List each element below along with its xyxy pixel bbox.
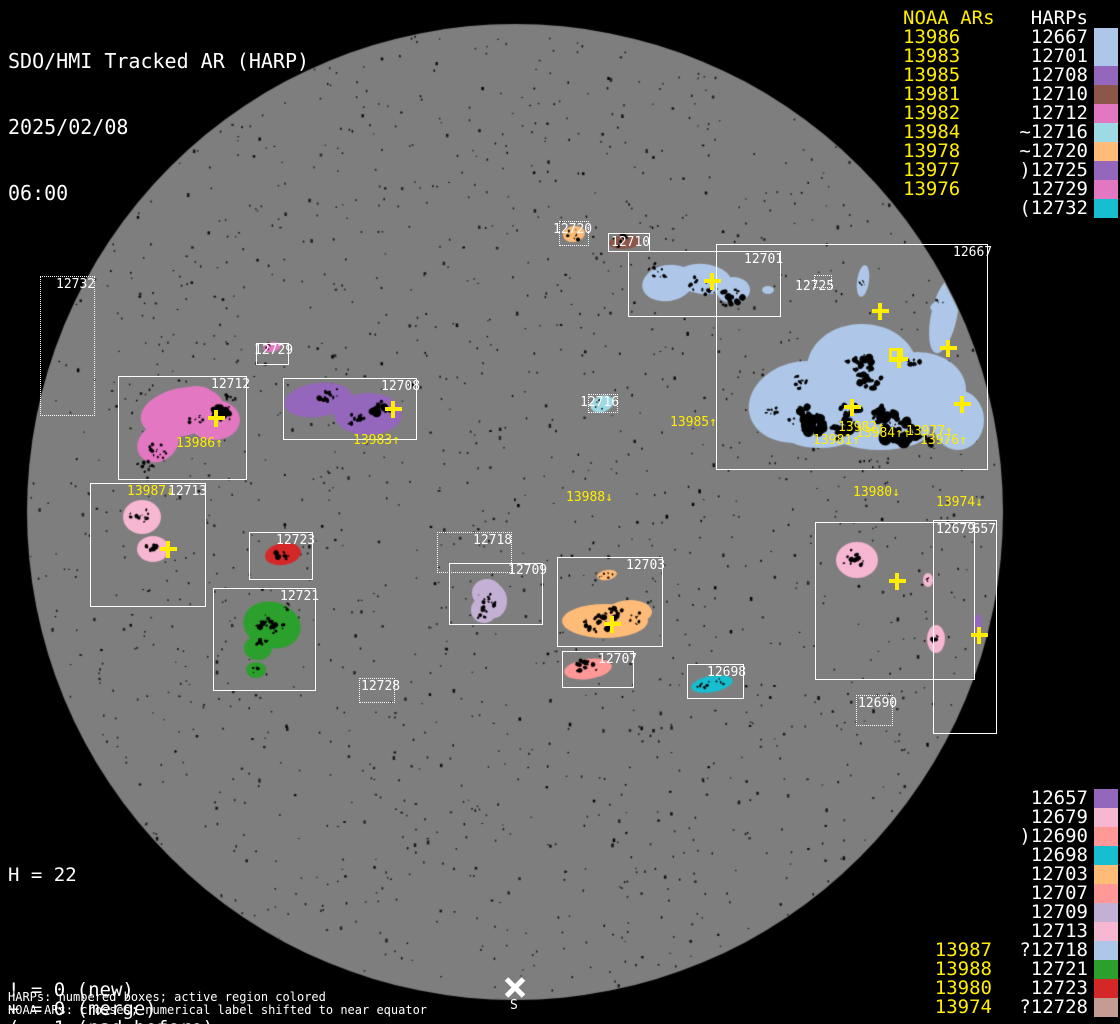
title-block: SDO/HMI Tracked AR (HARP) 2025/02/08 06:…	[8, 6, 309, 248]
color-swatch	[1094, 998, 1118, 1017]
time-label: 06:00	[8, 182, 309, 204]
noaa-ar-label: 13974↓	[936, 496, 983, 509]
legend-row: 12703	[930, 865, 1118, 884]
harp-label-12718: 12718	[473, 534, 512, 547]
harp-count: H = 22	[8, 866, 225, 885]
date-label: 2025/02/08	[8, 116, 309, 138]
legend-row: 12698	[930, 846, 1118, 865]
color-swatch	[1094, 979, 1118, 998]
harp-label-12721: 12721	[280, 590, 319, 603]
noaa-cross-marker	[844, 399, 861, 416]
color-swatch	[1094, 123, 1118, 142]
legend-top-right: NOAA ARs HARPs 1398612667139831270113985…	[903, 9, 1118, 218]
harp-label-12703: 12703	[626, 559, 665, 572]
legend-row: 13974?12728	[930, 998, 1118, 1017]
harp-label-12716: 12716	[580, 396, 619, 409]
noaa-cross-marker	[160, 541, 177, 558]
color-swatch	[1094, 827, 1118, 846]
color-swatch	[1094, 47, 1118, 66]
harp-label-12708: 12708	[381, 380, 420, 393]
harp-label-12701: 12701	[744, 253, 783, 266]
noaa-cross-marker	[604, 616, 621, 633]
color-swatch	[1094, 85, 1118, 104]
noaa-cross-marker	[872, 303, 889, 320]
noaa-ar-label: 13985↑	[670, 416, 717, 429]
noaa-square-marker	[889, 348, 903, 362]
footnote-line: NOAA ARs: crosses; numerical label shift…	[8, 1004, 427, 1017]
harp-label-12728: 12728	[361, 680, 400, 693]
harp-label-12725: 12725	[795, 280, 834, 293]
noaa-cross-marker	[704, 273, 721, 290]
harp-label-12732: 12732	[56, 278, 95, 291]
harp-number: (12732	[965, 199, 1088, 218]
noaa-ar-label: 13988↓	[566, 491, 613, 504]
page-title: SDO/HMI Tracked AR (HARP)	[8, 50, 309, 72]
south-label: S	[510, 998, 518, 1013]
noaa-cross-marker	[208, 410, 225, 427]
noaa-cross-marker	[954, 396, 971, 413]
noaa-ar-number: 13976	[903, 180, 965, 199]
noaa-ar-label: 13984↑↑	[856, 427, 911, 440]
legend-row: 12709	[930, 903, 1118, 922]
color-swatch	[1094, 789, 1118, 808]
color-swatch	[1094, 104, 1118, 123]
noaa-ar-label: 13980↓	[853, 486, 900, 499]
legend-row: (12732	[903, 199, 1118, 218]
swatch-spacer	[1094, 9, 1118, 28]
harp-label-12690: 12690	[858, 697, 897, 710]
color-swatch	[1094, 199, 1118, 218]
color-swatch	[1094, 28, 1118, 47]
noaa-ar-label: 13976↑	[920, 434, 967, 447]
harp-label-12723: 12723	[276, 534, 315, 547]
harp-box-12679	[815, 522, 975, 680]
noaa-ar-label: 13983↑	[353, 434, 400, 447]
footnotes: HARPs: numbered boxes; active region col…	[8, 991, 427, 1017]
legend-row: 12657	[930, 789, 1118, 808]
color-swatch	[1094, 180, 1118, 199]
harp-label-12679: 12679	[936, 523, 975, 536]
color-swatch	[1094, 941, 1118, 960]
harp-label-12710: 12710	[611, 236, 650, 249]
legend-bottom-right: 1265712679)12690126981270312707127091271…	[930, 789, 1118, 1017]
harp-label-12720: 12720	[553, 223, 592, 236]
color-swatch	[1094, 865, 1118, 884]
noaa-ar-label: 13986↑	[176, 437, 223, 450]
color-swatch	[1094, 808, 1118, 827]
color-swatch	[1094, 846, 1118, 865]
harp-number: ?12728	[992, 998, 1088, 1017]
legend-row: )12690	[930, 827, 1118, 846]
color-swatch	[1094, 142, 1118, 161]
harp-label-12657: 12657	[973, 523, 996, 539]
color-swatch	[1094, 903, 1118, 922]
noaa-cross-marker	[940, 340, 957, 357]
stats-gap	[8, 923, 225, 943]
harp-label-12707: 12707	[598, 653, 637, 666]
harp-fulldisk-map: 1273212720127101270112725126671271612729…	[0, 0, 1120, 1024]
noaa-ar-number: 13974	[930, 998, 992, 1017]
harp-box-12732	[40, 276, 95, 416]
color-swatch	[1094, 161, 1118, 180]
noaa-cross-marker	[971, 627, 988, 644]
harp-label-12698: 12698	[707, 666, 746, 679]
harp-label-12729: 12729	[254, 344, 293, 357]
noaa-cross-marker	[889, 573, 906, 590]
noaa-cross-marker	[385, 401, 402, 418]
color-swatch	[1094, 922, 1118, 941]
harp-box-12713	[90, 483, 206, 607]
noaa-ar-label: 13987↓	[127, 485, 174, 498]
color-swatch	[1094, 960, 1118, 979]
harp-label-12709: 12709	[508, 564, 547, 577]
color-swatch	[1094, 884, 1118, 903]
harp-label-12667: 12667	[953, 246, 992, 259]
harp-label-12712: 12712	[211, 378, 250, 391]
color-swatch	[1094, 66, 1118, 85]
flag-legend-line: ( = 1 (pad before)	[8, 1019, 225, 1024]
legend-row: 12707	[930, 884, 1118, 903]
noaa-ar-label: 13981↑	[813, 434, 860, 447]
